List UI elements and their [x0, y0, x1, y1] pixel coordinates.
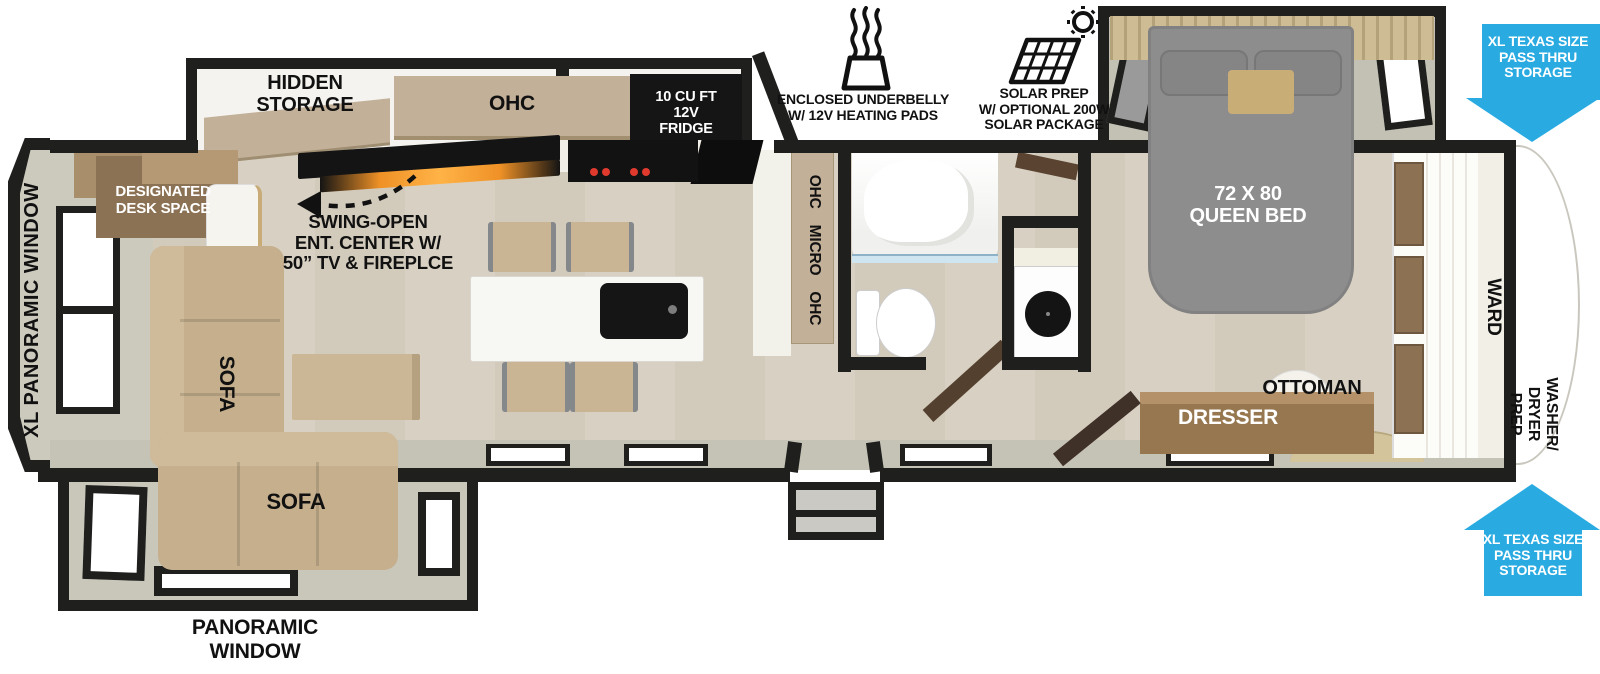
ohc-micro-label: OHC MICRO OHC [803, 160, 823, 340]
bottom-window-3 [900, 444, 992, 466]
wall-bottom-left [38, 468, 790, 482]
ottoman-label: OTTOMAN [1237, 377, 1387, 399]
washer [1014, 266, 1080, 360]
bath-wall-bottom-right [1002, 357, 1091, 370]
heating-pads-icon [830, 6, 902, 92]
shower-pan [864, 160, 974, 246]
sofa-slide-window-center [154, 566, 298, 596]
fridge-label: 10 CU FT 12V FRIDGE [655, 89, 716, 138]
shower-glass-door [852, 254, 998, 263]
washer-dryer-prep-label: WASHER/ DRYER PREP [1500, 352, 1560, 476]
sofa-slide-window-left [82, 485, 147, 581]
sofa-horizontal-back [158, 432, 398, 466]
dining-chair-2 [566, 222, 634, 272]
wall-top-center [774, 140, 1104, 153]
designated-desk-label: DESIGNATED DESK SPACE [84, 184, 242, 218]
sofa-vertical-seam-1 [180, 319, 280, 322]
wall-top-left [38, 140, 198, 153]
queen-bed-label: 72 X 80 QUEEN BED [1152, 183, 1344, 228]
burner-3 [630, 168, 638, 176]
dining-chair-3 [502, 362, 570, 412]
closet-wall-horizontal [1002, 216, 1091, 228]
bottom-window-2 [624, 444, 708, 466]
washer-door-dot [1046, 312, 1050, 316]
dresser-label: DRESSER [1148, 406, 1308, 430]
bottom-window-3-pane [905, 448, 987, 461]
sofa-slide-window-right [418, 492, 460, 576]
wall-top-bed-stub-right [1348, 140, 1440, 153]
wardrobe-shelf-1 [1394, 162, 1424, 246]
solar-prep-icon [1005, 6, 1100, 90]
pass-thru-label-bottom: XL TEXAS SIZE PASS THRU STORAGE [1478, 532, 1588, 579]
underbelly-label: ENCLOSED UNDERBELLY W/ 12V HEATING PADS [758, 92, 968, 123]
bottom-window-1 [486, 444, 570, 466]
ohc-label: OHC [462, 92, 562, 116]
end-table [292, 354, 420, 420]
sink-faucet [668, 305, 677, 314]
burner-4 [642, 168, 650, 176]
dining-chair-1 [488, 222, 556, 272]
closet-wall-vertical [1002, 222, 1014, 362]
swing-open-arrow [293, 168, 423, 226]
bottom-window-2-pane [629, 448, 703, 461]
stove [568, 140, 698, 182]
entry-steps [788, 482, 884, 540]
range-hood [691, 140, 764, 184]
ward-label: WARD [1482, 273, 1504, 341]
xl-panoramic-window-label: XL PANORAMIC WINDOW [21, 161, 45, 459]
rear-window-divider [63, 306, 113, 314]
solar-label: SOLAR PREP W/ OPTIONAL 200W SOLAR PACKAG… [944, 86, 1144, 133]
pass-thru-label-top: XL TEXAS SIZE PASS THRU STORAGE [1482, 34, 1594, 81]
wardrobe-panel-lines [1426, 152, 1478, 458]
kitchen-counter-column [753, 150, 791, 356]
sofa-label-horizontal: SOFA [226, 490, 366, 515]
wall-bottom-right [880, 468, 1516, 482]
wardrobe-shelf-2 [1394, 256, 1424, 334]
shower [852, 152, 998, 260]
bath-wall-right [1078, 150, 1091, 372]
sofa-label-vertical: SOFA [214, 330, 238, 438]
bath-wall-left [838, 150, 851, 372]
floorplan-canvas: 10 CU FT 12V FRIDGE [0, 0, 1600, 674]
bed-tray [1228, 70, 1294, 114]
hidden-storage-label: HIDDEN STORAGE [225, 72, 385, 117]
bottom-window-1-pane [491, 448, 565, 461]
bath-wall-bottom-left [838, 357, 926, 370]
desk-upper-cabinet [142, 150, 238, 184]
entry-step-divider [796, 510, 876, 517]
wardrobe [1392, 152, 1478, 458]
wall-top-bed-stub-left [1096, 140, 1154, 153]
dining-chair-4 [570, 362, 638, 412]
wardrobe-shelf-3 [1394, 344, 1424, 434]
burner-1 [590, 168, 598, 176]
toilet-bowl [876, 288, 936, 358]
burner-2 [602, 168, 610, 176]
panoramic-window-label: PANORAMIC WINDOW [150, 616, 360, 663]
